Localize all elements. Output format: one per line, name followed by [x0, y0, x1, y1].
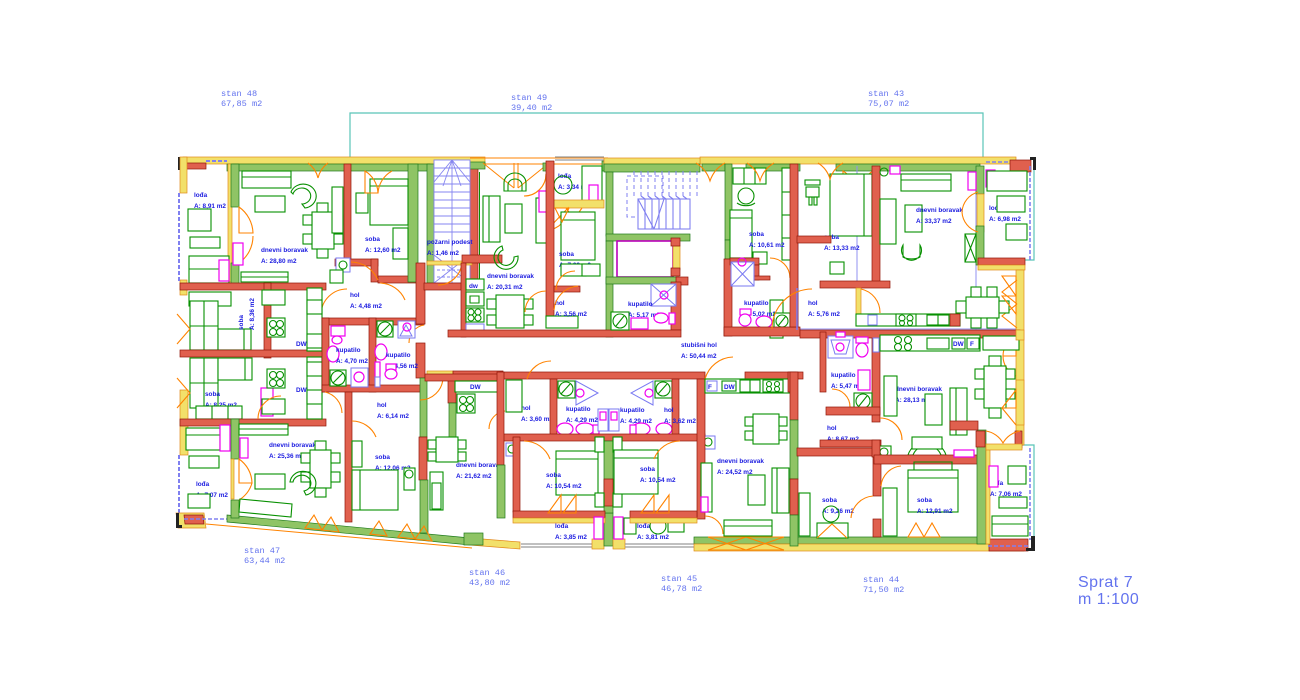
svg-text:soba: soba [546, 472, 561, 479]
svg-text:kupatilo: kupatilo [620, 407, 645, 414]
svg-text:kupatilo: kupatilo [386, 352, 411, 359]
svg-text:A: 4,48 m2: A: 4,48 m2 [350, 303, 382, 310]
svg-text:kupatilo: kupatilo [831, 372, 856, 379]
svg-text:lođa: lođa [555, 523, 569, 530]
svg-text:DW: DW [470, 384, 482, 391]
svg-text:soba: soba [917, 497, 932, 504]
svg-text:Sprat 7: Sprat 7 [1078, 574, 1133, 591]
svg-text:A: 6,14 m2: A: 6,14 m2 [377, 413, 409, 420]
svg-text:hol: hol [377, 402, 387, 409]
svg-text:dnevni boravak: dnevni boravak [261, 247, 308, 254]
svg-text:stan 48: stan 48 [221, 89, 257, 99]
svg-text:lođa: lođa [194, 192, 208, 199]
svg-text:soba: soba [238, 315, 245, 330]
svg-text:DW: DW [953, 341, 965, 348]
svg-text:A: 10,61 m2: A: 10,61 m2 [749, 242, 785, 249]
svg-text:A: 1,46 m2: A: 1,46 m2 [427, 250, 459, 257]
svg-text:A: 6,98 m2: A: 6,98 m2 [989, 216, 1021, 223]
svg-text:dnevni boravak: dnevni boravak [487, 273, 534, 280]
svg-text:dnevni boravak: dnevni boravak [717, 458, 764, 465]
svg-text:A: 4,70 m2: A: 4,70 m2 [336, 358, 368, 365]
svg-text:DW: DW [724, 384, 736, 391]
svg-text:soba: soba [640, 466, 655, 473]
svg-text:A: 50,44 m2: A: 50,44 m2 [681, 353, 717, 360]
svg-text:hol: hol [827, 425, 837, 432]
svg-text:dnevni boravak: dnevni boravak [456, 462, 503, 469]
svg-text:dw: dw [469, 283, 478, 290]
svg-text:stan 44: stan 44 [863, 575, 899, 585]
svg-text:stan 43: stan 43 [868, 89, 904, 99]
svg-text:stan 45: stan 45 [661, 574, 697, 584]
svg-text:stan 46: stan 46 [469, 568, 505, 578]
svg-text:A: 8,36 m2: A: 8,36 m2 [249, 298, 256, 330]
svg-text:kupatilo: kupatilo [744, 300, 769, 307]
svg-text:A: 3,62 m2: A: 3,62 m2 [664, 418, 696, 425]
svg-text:soba: soba [559, 251, 574, 258]
svg-text:A: 21,62 m2: A: 21,62 m2 [456, 473, 492, 480]
svg-text:lođa: lođa [637, 523, 651, 530]
svg-text:soba: soba [749, 231, 764, 238]
svg-text:dnevni boravak: dnevni boravak [269, 442, 316, 449]
svg-text:46,78 m2: 46,78 m2 [661, 584, 702, 594]
svg-text:71,50 m2: 71,50 m2 [863, 585, 904, 595]
svg-text:lođa: lođa [196, 481, 210, 488]
svg-text:DW: DW [296, 387, 308, 394]
svg-text:soba: soba [822, 497, 837, 504]
svg-text:dnevni boravak: dnevni boravak [916, 207, 963, 214]
svg-text:stan 49: stan 49 [511, 93, 547, 103]
svg-text:75,07 m2: 75,07 m2 [868, 99, 909, 109]
svg-text:A: 20,31 m2: A: 20,31 m2 [487, 284, 523, 291]
svg-text:63,44 m2: 63,44 m2 [244, 556, 285, 566]
svg-text:požarni podest: požarni podest [427, 239, 473, 246]
svg-text:A: 25,36 m2: A: 25,36 m2 [269, 453, 305, 460]
svg-text:A: 33,37 m2: A: 33,37 m2 [916, 218, 952, 225]
svg-text:soba: soba [365, 236, 380, 243]
svg-text:A: 13,33 m2: A: 13,33 m2 [824, 245, 860, 252]
svg-text:soba: soba [375, 454, 390, 461]
svg-text:hol: hol [350, 292, 360, 299]
svg-text:A: 3,85 m2: A: 3,85 m2 [555, 534, 587, 541]
svg-text:A: 3,56 m2: A: 3,56 m2 [555, 311, 587, 318]
svg-text:DW: DW [296, 341, 308, 348]
svg-text:kupatilo: kupatilo [336, 347, 361, 354]
svg-text:A: 3,60 m2: A: 3,60 m2 [521, 416, 553, 423]
svg-text:A: 28,80 m2: A: 28,80 m2 [261, 258, 297, 265]
svg-text:F: F [708, 384, 712, 391]
svg-text:A: 12,60 m2: A: 12,60 m2 [365, 247, 401, 254]
svg-text:A: 5,76 m2: A: 5,76 m2 [808, 311, 840, 318]
svg-text:67,85 m2: 67,85 m2 [221, 99, 262, 109]
svg-text:kupatilo: kupatilo [566, 406, 591, 413]
svg-text:43,80 m2: 43,80 m2 [469, 578, 510, 588]
svg-text:A: 10,54 m2: A: 10,54 m2 [640, 477, 676, 484]
svg-text:stubišni hol: stubišni hol [681, 342, 717, 349]
svg-text:hol: hol [664, 407, 674, 414]
svg-text:A: 12,91 m2: A: 12,91 m2 [917, 508, 953, 515]
svg-text:A: 3,81 m2: A: 3,81 m2 [637, 534, 669, 541]
svg-text:m 1:100: m 1:100 [1078, 591, 1139, 608]
svg-text:dnevni boravak: dnevni boravak [895, 386, 942, 393]
svg-text:stan 47: stan 47 [244, 546, 280, 556]
svg-text:kupatilo: kupatilo [628, 301, 653, 308]
svg-text:hol: hol [808, 300, 818, 307]
svg-text:39,40 m2: 39,40 m2 [511, 103, 552, 113]
svg-text:soba: soba [205, 391, 220, 398]
svg-text:A: 10,54 m2: A: 10,54 m2 [546, 483, 582, 490]
svg-text:F: F [970, 341, 974, 348]
